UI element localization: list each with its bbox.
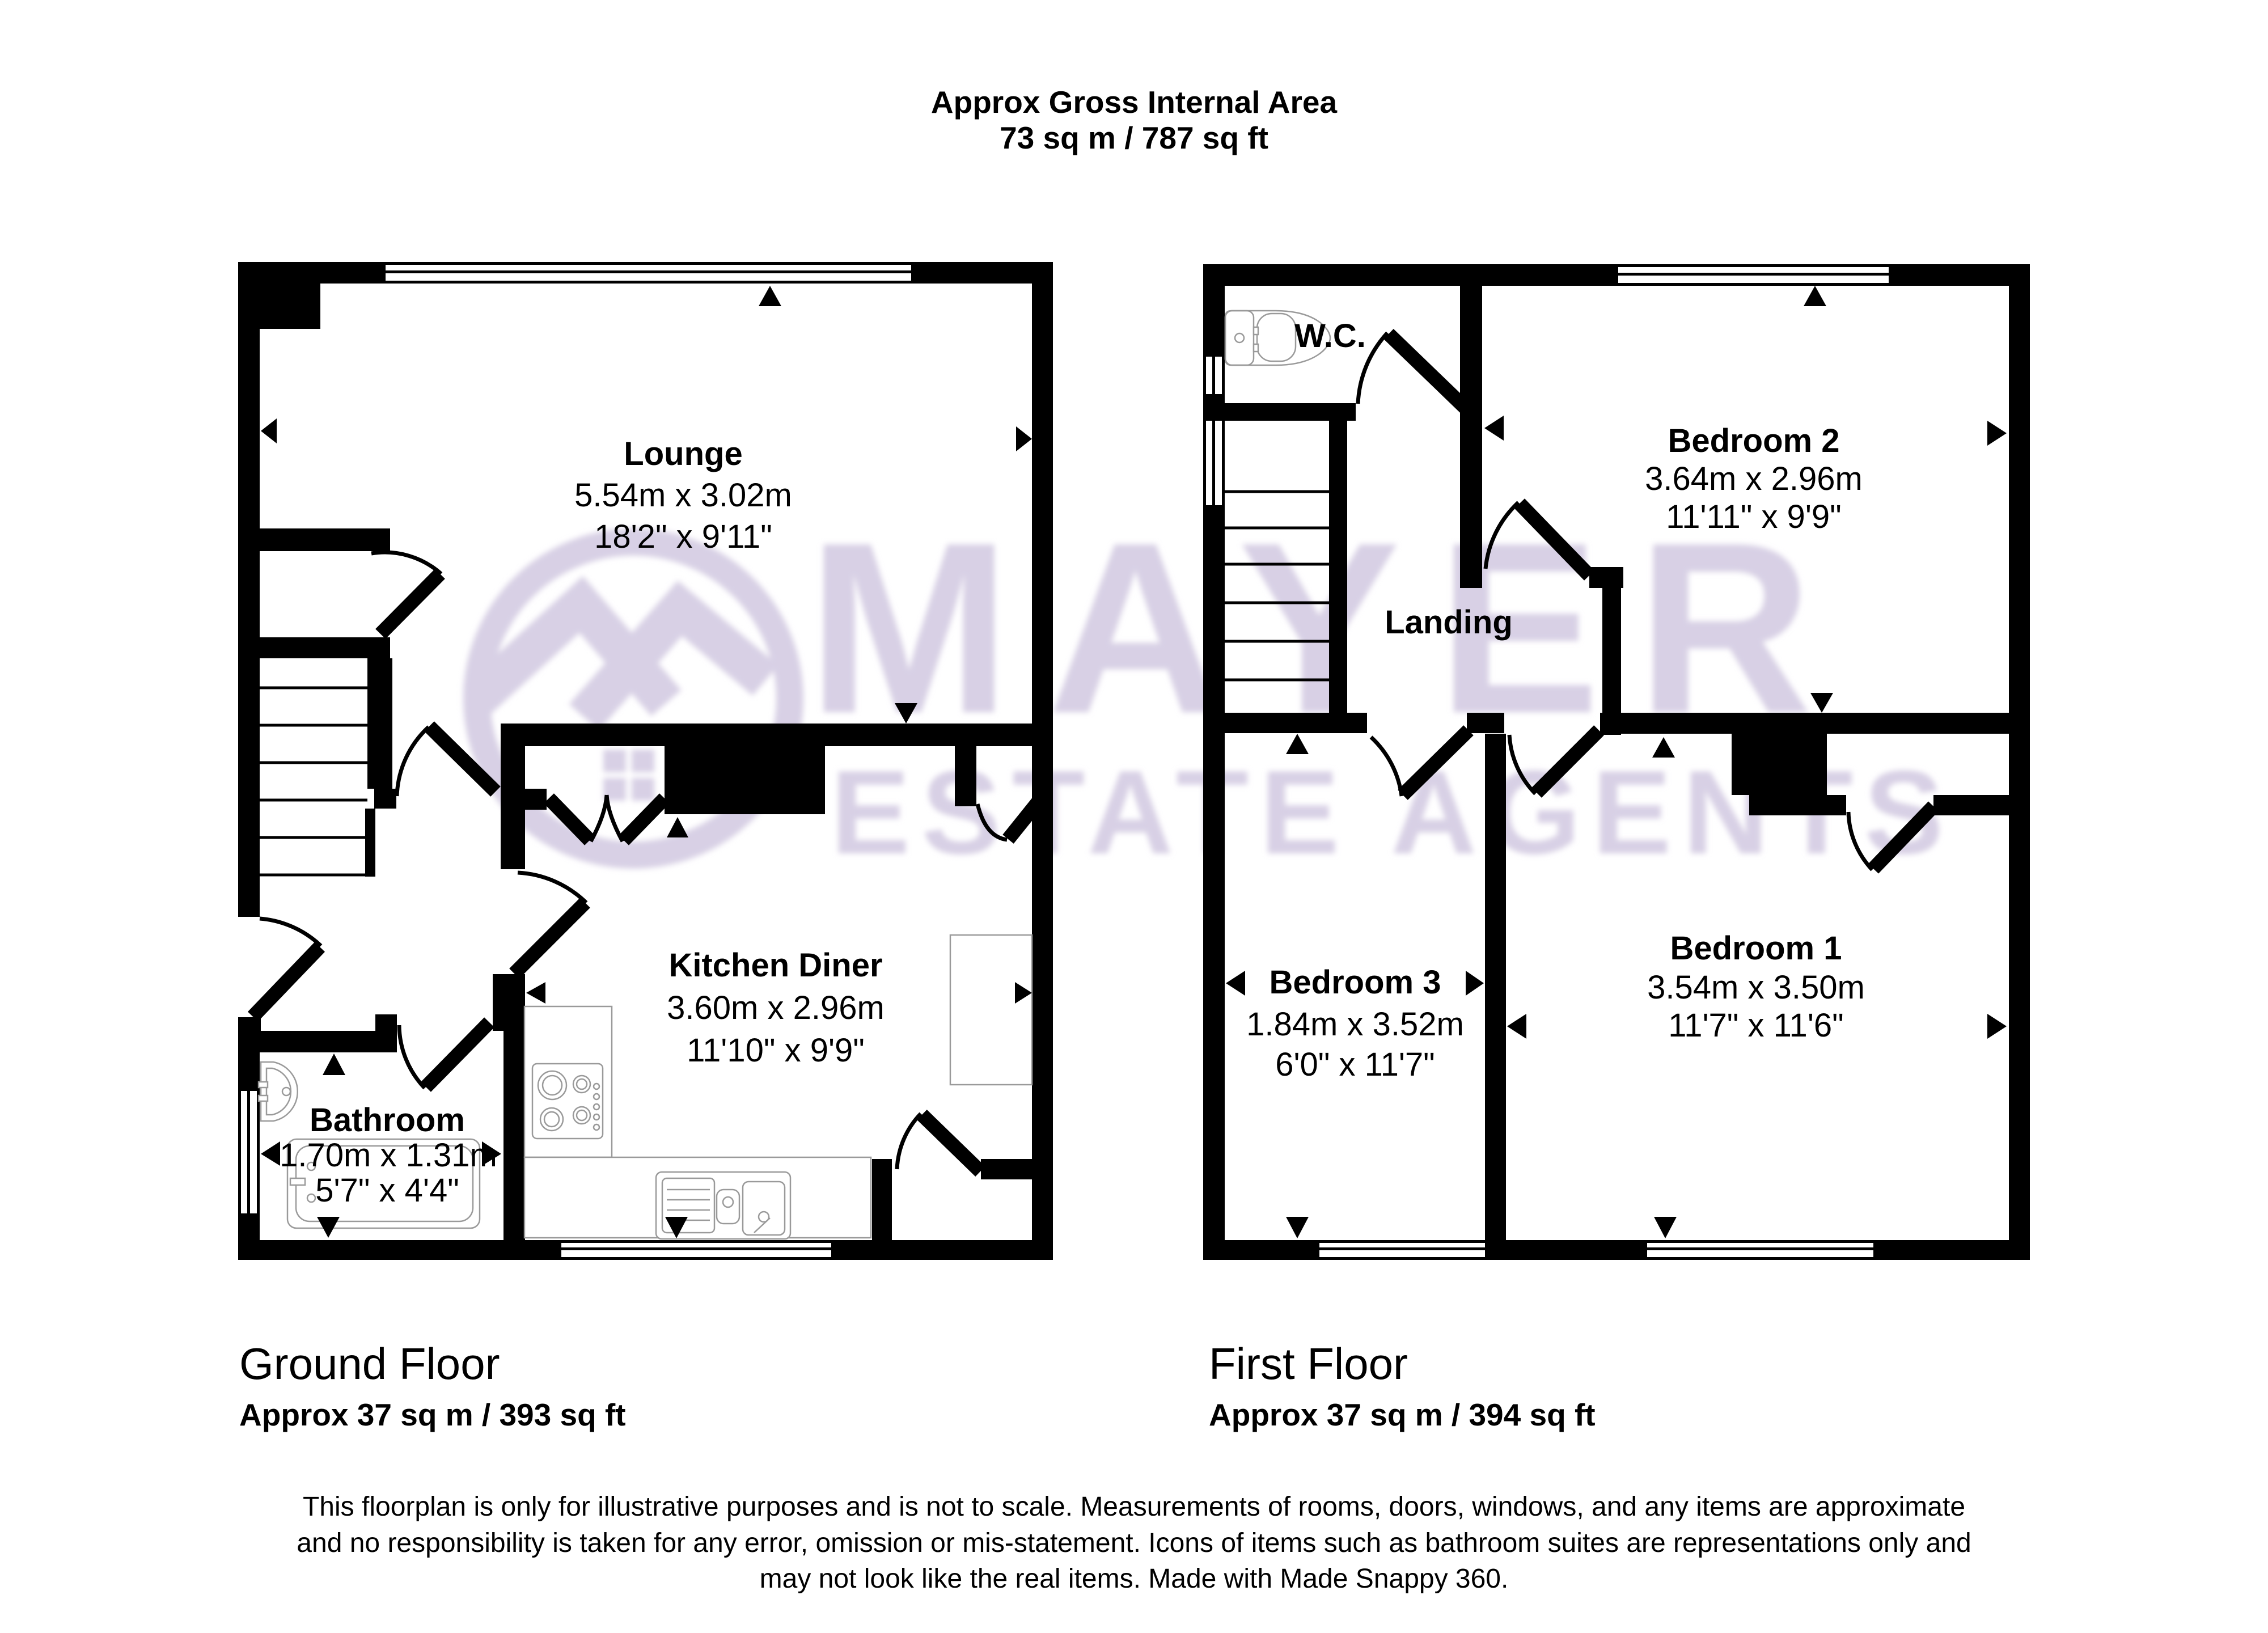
svg-text:Landing: Landing xyxy=(1385,604,1513,641)
svg-text:Bedroom 2: Bedroom 2 xyxy=(1668,422,1840,459)
svg-text:and no responsibility is taken: and no responsibility is taken for any e… xyxy=(297,1528,1971,1558)
svg-text:Approx 37 sq m / 394 sq ft: Approx 37 sq m / 394 sq ft xyxy=(1209,1397,1596,1432)
svg-text:Approx 37 sq m / 393 sq ft: Approx 37 sq m / 393 sq ft xyxy=(239,1397,626,1432)
svg-text:This floorplan is only for ill: This floorplan is only for illustrative … xyxy=(303,1492,1965,1522)
svg-text:18'2" x 9'11": 18'2" x 9'11" xyxy=(594,518,772,555)
svg-text:1.70m x 1.31m: 1.70m x 1.31m xyxy=(280,1137,497,1174)
svg-text:First Floor: First Floor xyxy=(1209,1339,1408,1389)
svg-text:Ground Floor: Ground Floor xyxy=(239,1339,500,1389)
svg-text:11'10" x 9'9": 11'10" x 9'9" xyxy=(687,1032,865,1069)
svg-text:3.64m x 2.96m: 3.64m x 2.96m xyxy=(1645,460,1863,497)
svg-text:3.60m x 2.96m: 3.60m x 2.96m xyxy=(667,989,885,1026)
svg-text:Bedroom 1: Bedroom 1 xyxy=(1670,930,1842,967)
svg-text:Kitchen Diner: Kitchen Diner xyxy=(668,947,882,984)
svg-text:Bedroom 3: Bedroom 3 xyxy=(1270,964,1441,1001)
svg-text:6'0" x 11'7": 6'0" x 11'7" xyxy=(1275,1046,1435,1083)
svg-text:11'11" x 9'9": 11'11" x 9'9" xyxy=(1666,498,1841,535)
svg-text:73 sq m / 787 sq ft: 73 sq m / 787 sq ft xyxy=(1000,120,1268,155)
svg-text:5'7" x 4'4": 5'7" x 4'4" xyxy=(315,1172,459,1209)
svg-text:Lounge: Lounge xyxy=(624,435,742,472)
svg-text:11'7" x 11'6": 11'7" x 11'6" xyxy=(1668,1007,1843,1044)
svg-text:Approx Gross Internal Area: Approx Gross Internal Area xyxy=(931,84,1338,120)
svg-text:W.C.: W.C. xyxy=(1294,318,1366,354)
svg-text:Bathroom: Bathroom xyxy=(310,1102,465,1139)
svg-text:may not look like the real ite: may not look like the real items. Made w… xyxy=(760,1564,1509,1594)
svg-text:1.84m x 3.52m: 1.84m x 3.52m xyxy=(1246,1006,1464,1043)
svg-text:3.54m x 3.50m: 3.54m x 3.50m xyxy=(1647,969,1865,1006)
svg-text:5.54m x 3.02m: 5.54m x 3.02m xyxy=(574,477,792,514)
